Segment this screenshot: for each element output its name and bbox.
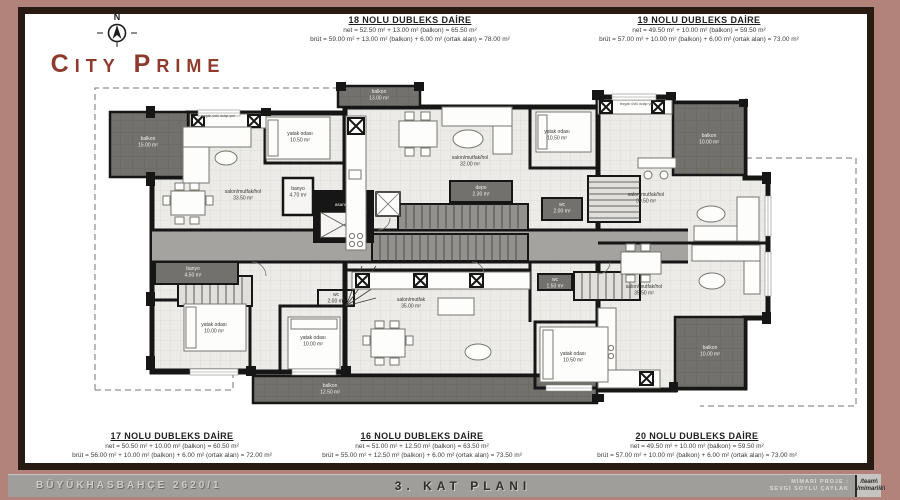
unit-brut: brüt = 59.00 m² + 13.00 m² (balkon) + 6.… <box>310 36 510 43</box>
unit-info-16: 16 NOLU DUBLEKS DAİRE net = 51.00 m² + 1… <box>322 431 522 459</box>
unit-title: 16 NOLU DUBLEKS DAİRE <box>322 431 522 441</box>
compass-icon: N <box>97 12 137 47</box>
unit-net: net = 52.50 m² + 13.00 m² (balkon) = 65.… <box>310 27 510 34</box>
room-label: banyo4.70 m² <box>290 186 307 199</box>
credit-label: MİMARİ PROJE : <box>770 479 849 486</box>
unit-title: 17 NOLU DUBLEKS DAİRE <box>72 431 272 441</box>
room-label: balkon10.00 m² <box>700 345 720 358</box>
unit-net: net = 49.50 m² + 10.00 m² (balkon) = 59.… <box>597 443 797 450</box>
logo-line-1: /team\ <box>857 479 881 486</box>
unit-net: net = 51.00 m² + 12.50 m² (balkon) = 63.… <box>322 443 522 450</box>
plan-note: tezgah üstü dolap yeri <box>201 114 235 118</box>
unit-title: 18 NOLU DUBLEKS DAİRE <box>310 15 510 25</box>
unit-title: 19 NOLU DUBLEKS DAİRE <box>599 15 799 25</box>
room-label: yatak odası10.00 m² <box>201 322 227 335</box>
room-label: yatak odası10.50 m² <box>287 131 313 144</box>
room-label: yatak odası10.00 m² <box>300 335 326 348</box>
room-label: banyo4.50 m² <box>185 266 202 279</box>
floor-plan-title: 3. KAT PLANI <box>395 479 531 493</box>
room-label: balkon15.00 m² <box>138 136 158 149</box>
room-label: balkon10.00 m² <box>699 133 719 146</box>
unit-info-18: 18 NOLU DUBLEKS DAİRE net = 52.50 m² + 1… <box>310 15 510 43</box>
unit-title: 20 NOLU DUBLEKS DAİRE <box>597 431 797 441</box>
unit-brut: brüt = 57.00 m² + 10.00 m² (balkon) + 6.… <box>599 36 799 43</box>
unit-brut: brüt = 56.00 m² + 10.00 m² (balkon) + 6.… <box>72 452 272 459</box>
room-label: yatak odası10.50 m² <box>560 351 586 364</box>
plan-note: tezgah üstü dolap yeri <box>620 102 654 106</box>
unit-net: net = 50.50 m² + 10.00 m² (balkon) = 60.… <box>72 443 272 450</box>
room-label: balkon12.50 m² <box>320 383 340 396</box>
room-label: yatak odası10.50 m² <box>544 129 570 142</box>
unit-info-17: 17 NOLU DUBLEKS DAİRE net = 50.50 m² + 1… <box>72 431 272 459</box>
unit-info-20: 20 NOLU DUBLEKS DAİRE net = 49.50 m² + 1… <box>597 431 797 459</box>
credit-name: SEVGİ SOYLU ÇAYLAK <box>770 486 849 493</box>
team-mimarlik-logo: /team\ /mimarlik\ <box>855 475 881 497</box>
architect-credit: MİMARİ PROJE : SEVGİ SOYLU ÇAYLAK <box>770 479 849 493</box>
unit-net: net = 49.50 m² + 10.00 m² (balkon) = 59.… <box>599 27 799 34</box>
footer-bar: BÜYÜKHASBAHÇE 2620/1 3. KAT PLANI MİMARİ… <box>8 474 881 497</box>
compass-north-letter: N <box>114 12 121 22</box>
unit-brut: brüt = 57.00 m² + 10.00 m² (balkon) + 6.… <box>597 452 797 459</box>
project-name: BÜYÜKHASBAHÇE 2620/1 <box>36 480 222 491</box>
logo-line-2: /mimarlik\ <box>857 486 881 493</box>
unit-info-19: 19 NOLU DUBLEKS DAİRE net = 49.50 m² + 1… <box>599 15 799 43</box>
floorplan-sheet: { "brand": { "name": "City Prime", "comp… <box>0 0 900 500</box>
room-label: balkon13.00 m² <box>369 89 389 102</box>
brand-logo: City Prime <box>38 50 238 79</box>
unit-brut: brüt = 55.00 m² + 12.50 m² (balkon) + 6.… <box>322 452 522 459</box>
